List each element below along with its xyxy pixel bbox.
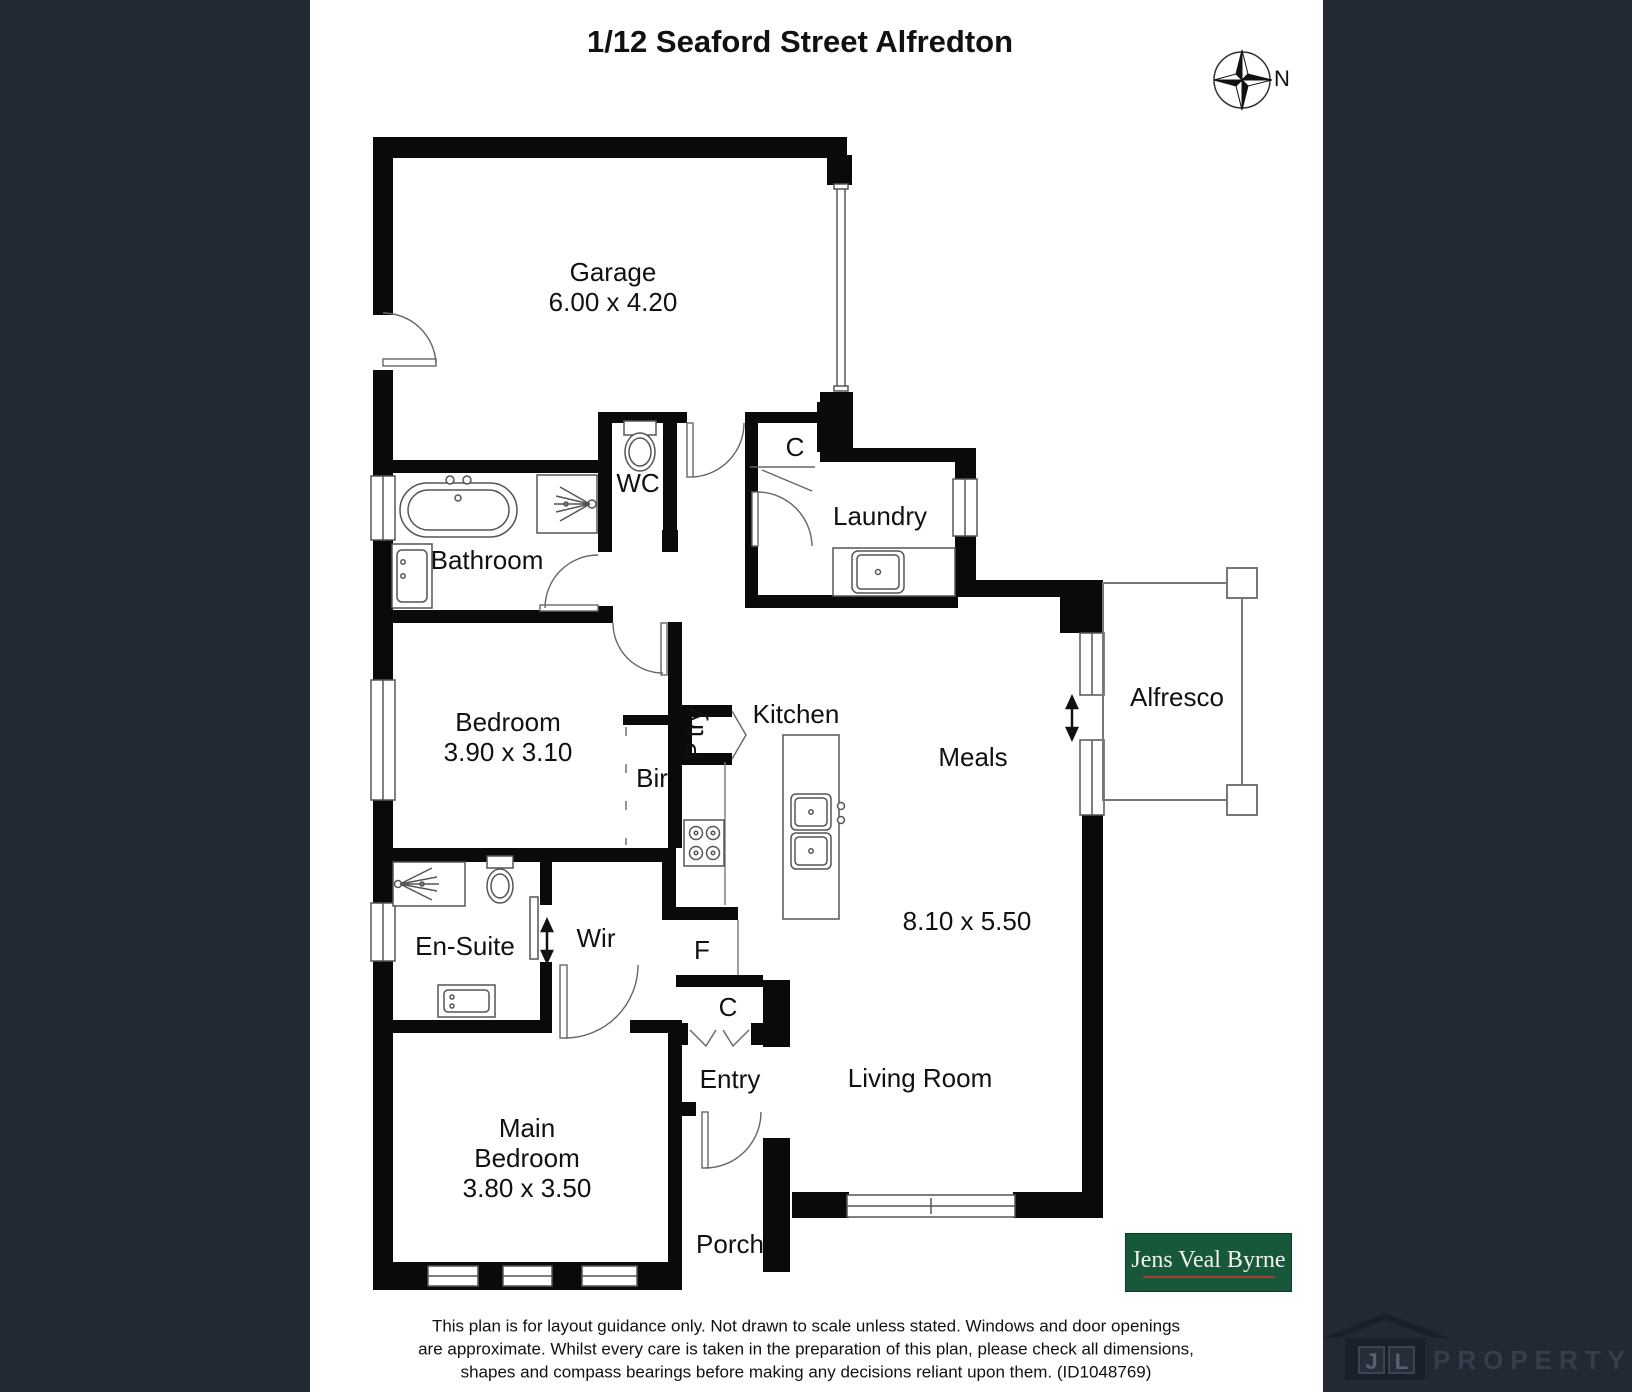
room-label-kitchen: Kitchen <box>753 699 840 729</box>
watermark-monogram-l: L <box>1388 1346 1415 1374</box>
page-title: 1/12 Seaford Street Alfredton <box>587 24 1013 60</box>
right-dark-panel <box>1323 0 1632 1392</box>
left-dark-panel <box>0 0 310 1392</box>
main-bedroom-line1: Main <box>463 1113 592 1143</box>
room-label-meals: Meals <box>938 742 1007 772</box>
main-bedroom-dimensions: 3.80 x 3.50 <box>463 1173 592 1203</box>
bedroom-name: Bedroom <box>444 707 573 737</box>
room-label-laundry: Laundry <box>833 501 927 531</box>
living-dimensions: 8.10 x 5.50 <box>903 906 1032 936</box>
bedroom-dimensions: 3.90 x 3.10 <box>444 737 573 767</box>
room-label-bir: Bir <box>636 763 668 793</box>
watermark-text: PROPERTY <box>1433 1345 1632 1376</box>
disclaimer-line-2: are approximate. Whilst every care is ta… <box>418 1338 1194 1361</box>
watermark-monogram-j: J <box>1358 1346 1385 1374</box>
room-label-pantry: P'try <box>679 708 709 759</box>
room-label-fridge: F <box>694 935 710 965</box>
agency-name: Jens Veal Byrne <box>1131 1247 1285 1273</box>
garage-name: Garage <box>549 257 678 287</box>
compass-north-label: N <box>1274 64 1290 94</box>
room-label-living: Living Room <box>848 1063 993 1093</box>
room-label-closet-entry: C <box>719 992 738 1022</box>
agency-logo: Jens Veal Byrne <box>1125 1233 1292 1292</box>
jl-property-watermark: J L PROPERTY <box>1323 1300 1632 1392</box>
room-label-bathroom: Bathroom <box>431 545 544 575</box>
room-label-closet-hall: C <box>786 432 805 462</box>
room-label-bedroom: Bedroom 3.90 x 3.10 <box>444 707 573 767</box>
room-label-main-bedroom: Main Bedroom 3.80 x 3.50 <box>463 1113 592 1203</box>
disclaimer-line-3: shapes and compass bearings before makin… <box>418 1361 1194 1384</box>
compass-icon <box>1214 50 1272 110</box>
room-label-garage: Garage 6.00 x 4.20 <box>549 257 678 317</box>
room-label-wir: Wir <box>577 923 616 953</box>
room-label-ensuite: En-Suite <box>415 931 515 961</box>
garage-dimensions: 6.00 x 4.20 <box>549 287 678 317</box>
room-label-alfresco: Alfresco <box>1130 682 1224 712</box>
main-bedroom-line2: Bedroom <box>463 1143 592 1173</box>
room-label-porch: Porch <box>696 1229 764 1259</box>
disclaimer-text: This plan is for layout guidance only. N… <box>418 1315 1194 1384</box>
agency-logo-underline <box>1143 1276 1275 1278</box>
room-label-wc: WC <box>616 468 659 498</box>
disclaimer-line-1: This plan is for layout guidance only. N… <box>418 1315 1194 1338</box>
room-label-entry: Entry <box>700 1064 761 1094</box>
floorplan-page: 1/12 Seaford Street Alfredton N Garage 6… <box>0 0 1632 1392</box>
